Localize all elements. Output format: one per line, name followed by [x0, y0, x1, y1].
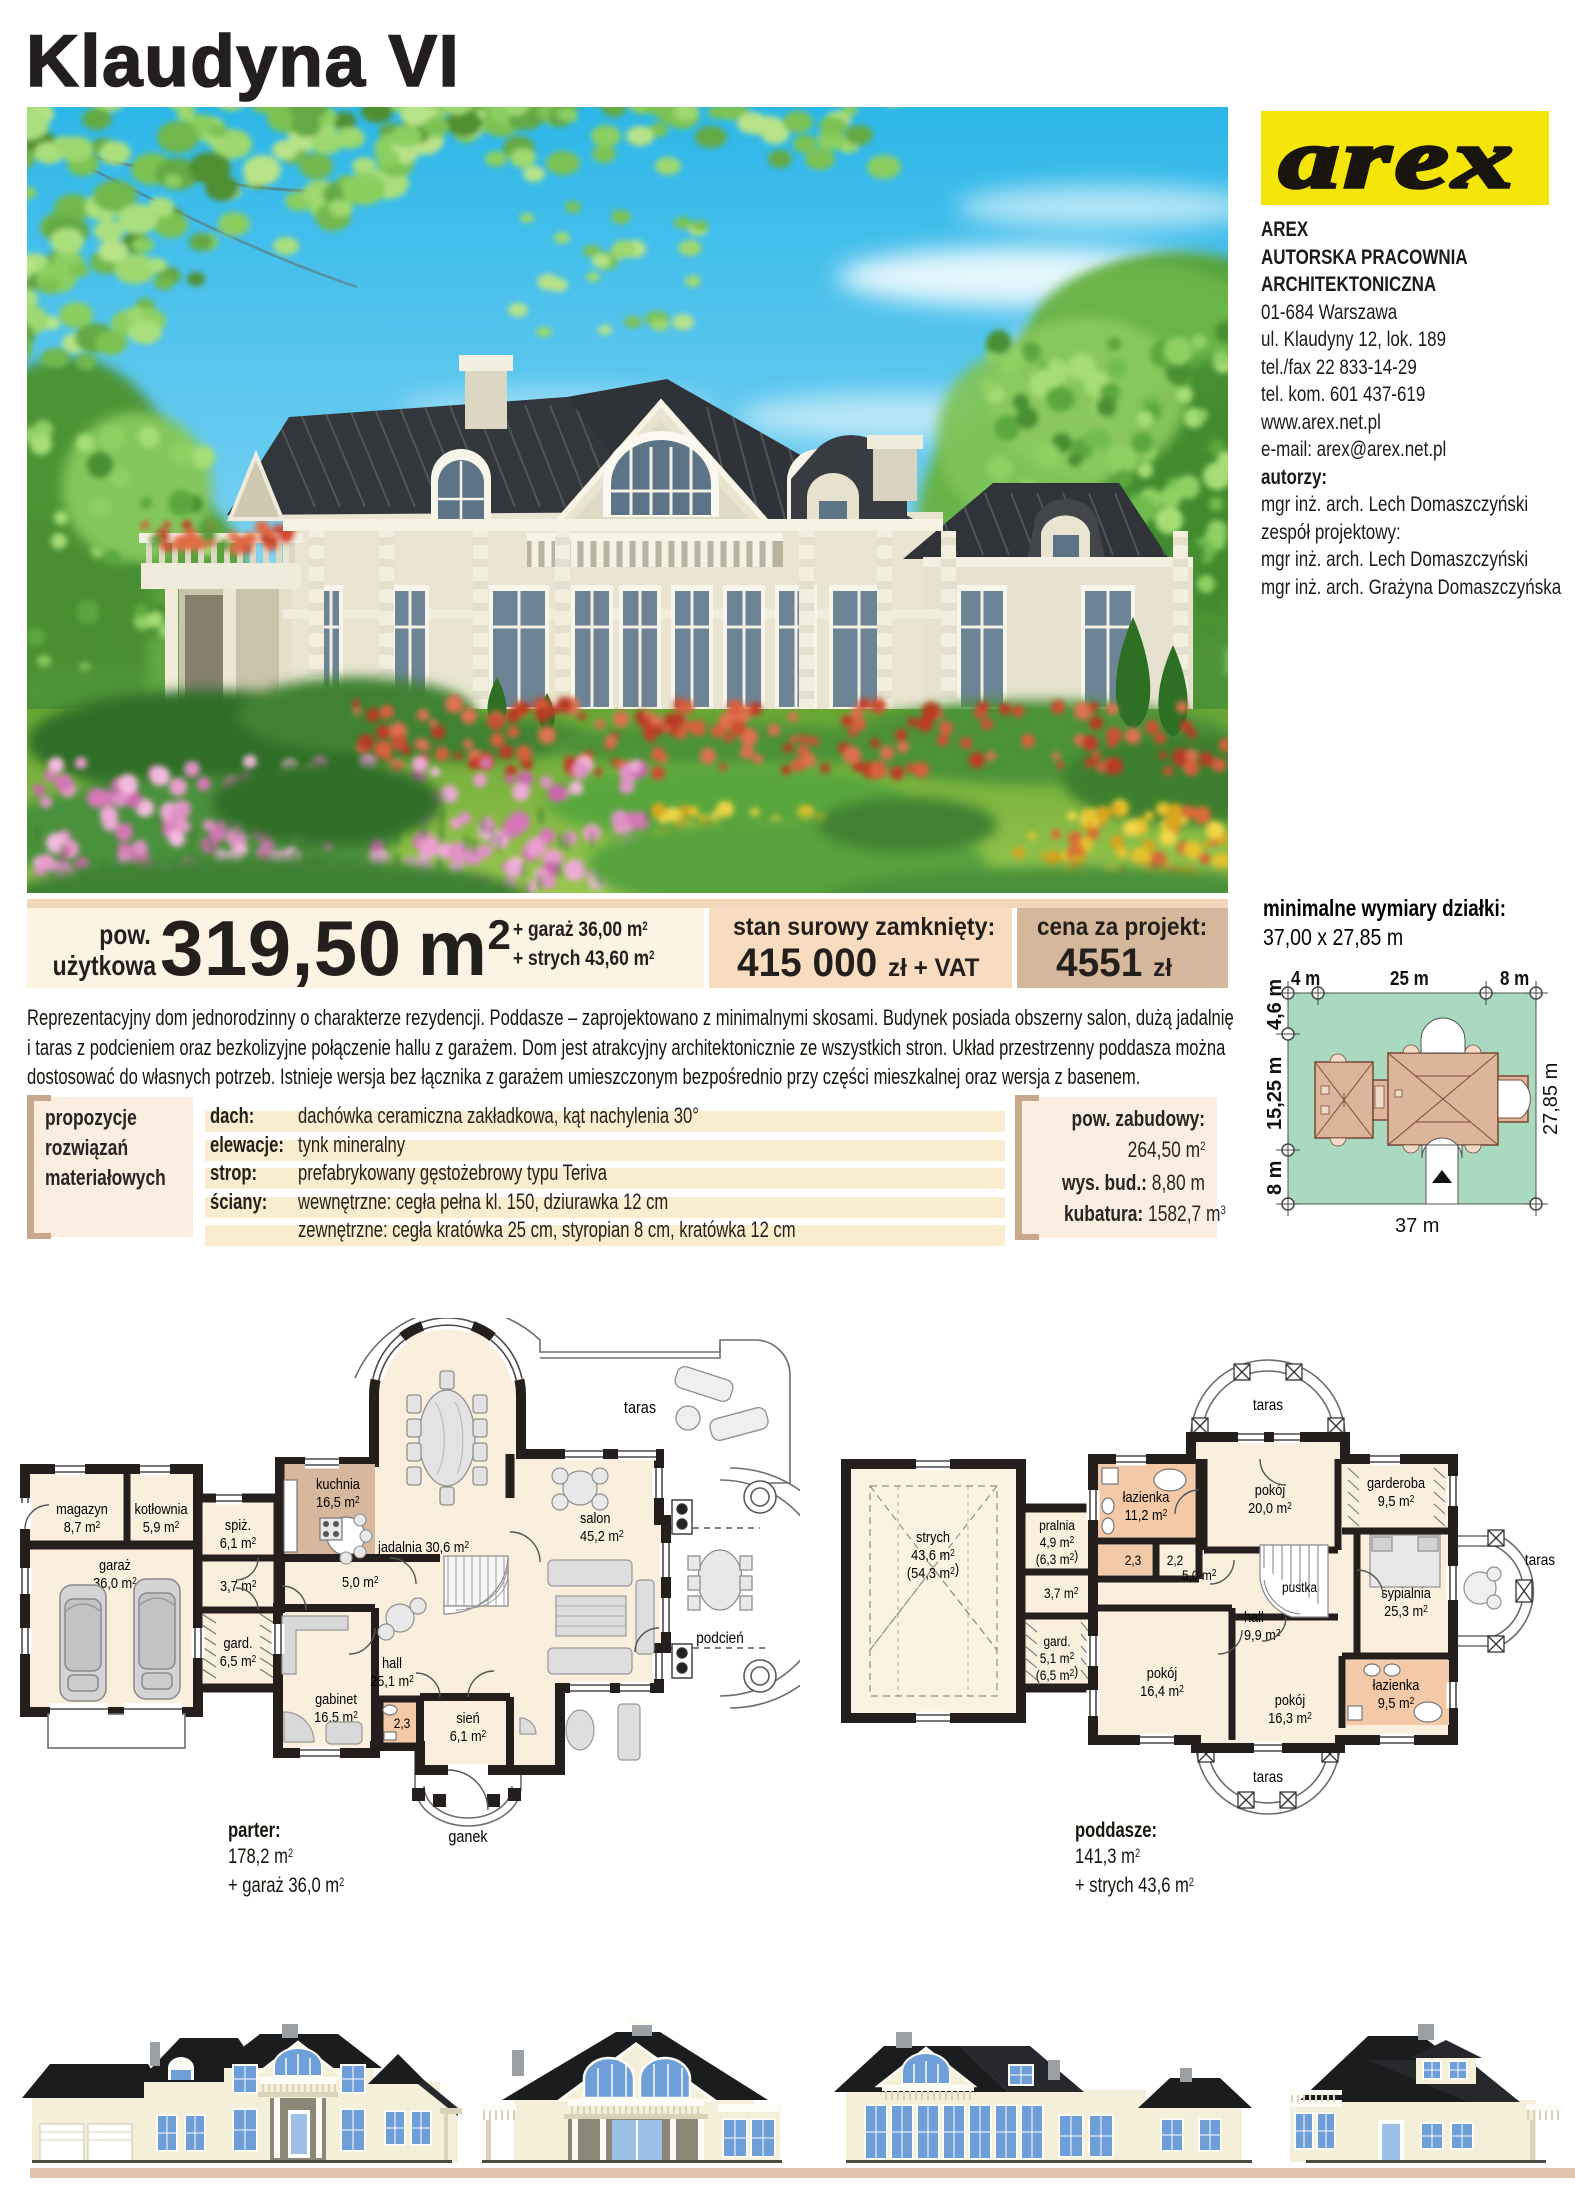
svg-text:4,9 m2: 4,9 m2 — [1040, 1534, 1074, 1550]
svg-text:garderoba: garderoba — [1367, 1474, 1425, 1491]
svg-text:8,7 m2: 8,7 m2 — [64, 1518, 101, 1535]
svg-text:5,1 m2: 5,1 m2 — [1040, 1650, 1074, 1666]
svg-text:5,9 m2: 5,9 m2 — [143, 1518, 180, 1535]
svg-text:pustka: pustka — [1282, 1579, 1318, 1595]
svg-text:9,5 m2: 9,5 m2 — [1378, 1492, 1415, 1509]
svg-text:15,25 m: 15,25 m — [1264, 1057, 1286, 1130]
svg-text:37 m: 37 m — [1395, 1215, 1439, 1237]
svg-text:3,7 m2: 3,7 m2 — [1044, 1585, 1078, 1601]
svg-text:jadalnia 30,6 m2: jadalnia 30,6 m2 — [377, 1538, 469, 1555]
svg-text:magazyn: magazyn — [56, 1500, 108, 1517]
svg-text:16,3 m2: 16,3 m2 — [1268, 1709, 1312, 1726]
svg-text:taras: taras — [624, 1399, 656, 1417]
svg-text:2,3: 2,3 — [394, 1715, 411, 1731]
svg-text:salon: salon — [580, 1509, 610, 1526]
svg-text:9,5 m2: 9,5 m2 — [1378, 1694, 1415, 1711]
svg-text:pokój: pokój — [1147, 1664, 1177, 1681]
svg-text:8 m: 8 m — [1500, 967, 1529, 990]
svg-text:4,6 m: 4,6 m — [1264, 979, 1286, 1030]
svg-text:6,1 m2: 6,1 m2 — [450, 1727, 487, 1744]
svg-text:spiż.: spiż. — [225, 1516, 251, 1533]
svg-text:6,5 m2: 6,5 m2 — [220, 1652, 257, 1669]
svg-text:pralnia: pralnia — [1039, 1517, 1075, 1533]
svg-text:45,2 m2: 45,2 m2 — [580, 1527, 624, 1544]
svg-text:2,3: 2,3 — [1125, 1552, 1142, 1568]
svg-text:garaż: garaż — [99, 1556, 131, 1573]
svg-text:sień: sień — [456, 1709, 479, 1726]
svg-text:4 m: 4 m — [1291, 967, 1320, 990]
svg-text:taras: taras — [1525, 1552, 1555, 1569]
svg-text:gabinet: gabinet — [315, 1690, 357, 1707]
svg-text:16,4 m2: 16,4 m2 — [1140, 1682, 1184, 1699]
svg-text:łazienka: łazienka — [1123, 1488, 1170, 1505]
svg-text:25,3 m2: 25,3 m2 — [1384, 1602, 1428, 1619]
svg-text:hall: hall — [1244, 1608, 1264, 1625]
svg-text:2,2: 2,2 — [1167, 1552, 1184, 1568]
svg-text:strych: strych — [916, 1528, 950, 1545]
svg-text:kuchnia: kuchnia — [316, 1475, 360, 1492]
svg-text:gard.: gard. — [1043, 1633, 1070, 1649]
svg-text:taras: taras — [1253, 1769, 1283, 1786]
svg-text:37,00 x 27,85 m: 37,00 x 27,85 m — [1263, 925, 1403, 951]
svg-text:6,1 m2: 6,1 m2 — [220, 1534, 257, 1551]
svg-text:hall: hall — [382, 1654, 402, 1671]
svg-text:5,0 m2: 5,0 m2 — [1182, 1567, 1216, 1583]
svg-text:20,0 m2: 20,0 m2 — [1248, 1499, 1292, 1516]
svg-text:pokój: pokój — [1255, 1481, 1285, 1498]
svg-text:25,1 m2: 25,1 m2 — [370, 1672, 414, 1689]
svg-text:taras: taras — [1253, 1397, 1283, 1414]
svg-text:ganek: ganek — [448, 1828, 487, 1846]
svg-text:podcień: podcień — [696, 1630, 744, 1647]
svg-text:16,5 m2: 16,5 m2 — [316, 1493, 360, 1510]
svg-text:11,2 m2: 11,2 m2 — [1125, 1506, 1168, 1523]
svg-text:43,6 m2: 43,6 m2 — [911, 1546, 955, 1563]
svg-text:25 m: 25 m — [1390, 967, 1429, 990]
svg-text:pokój: pokój — [1275, 1691, 1305, 1708]
svg-text:minimalne wymiary działki:: minimalne wymiary działki: — [1263, 896, 1506, 921]
svg-text:5,0 m2: 5,0 m2 — [342, 1573, 379, 1590]
svg-text:łazienka: łazienka — [1373, 1676, 1420, 1693]
svg-text:27,85 m: 27,85 m — [1540, 1063, 1562, 1135]
svg-text:8 m: 8 m — [1264, 1161, 1286, 1195]
svg-text:gard.: gard. — [223, 1634, 252, 1651]
svg-text:kotłownia: kotłownia — [134, 1500, 187, 1517]
